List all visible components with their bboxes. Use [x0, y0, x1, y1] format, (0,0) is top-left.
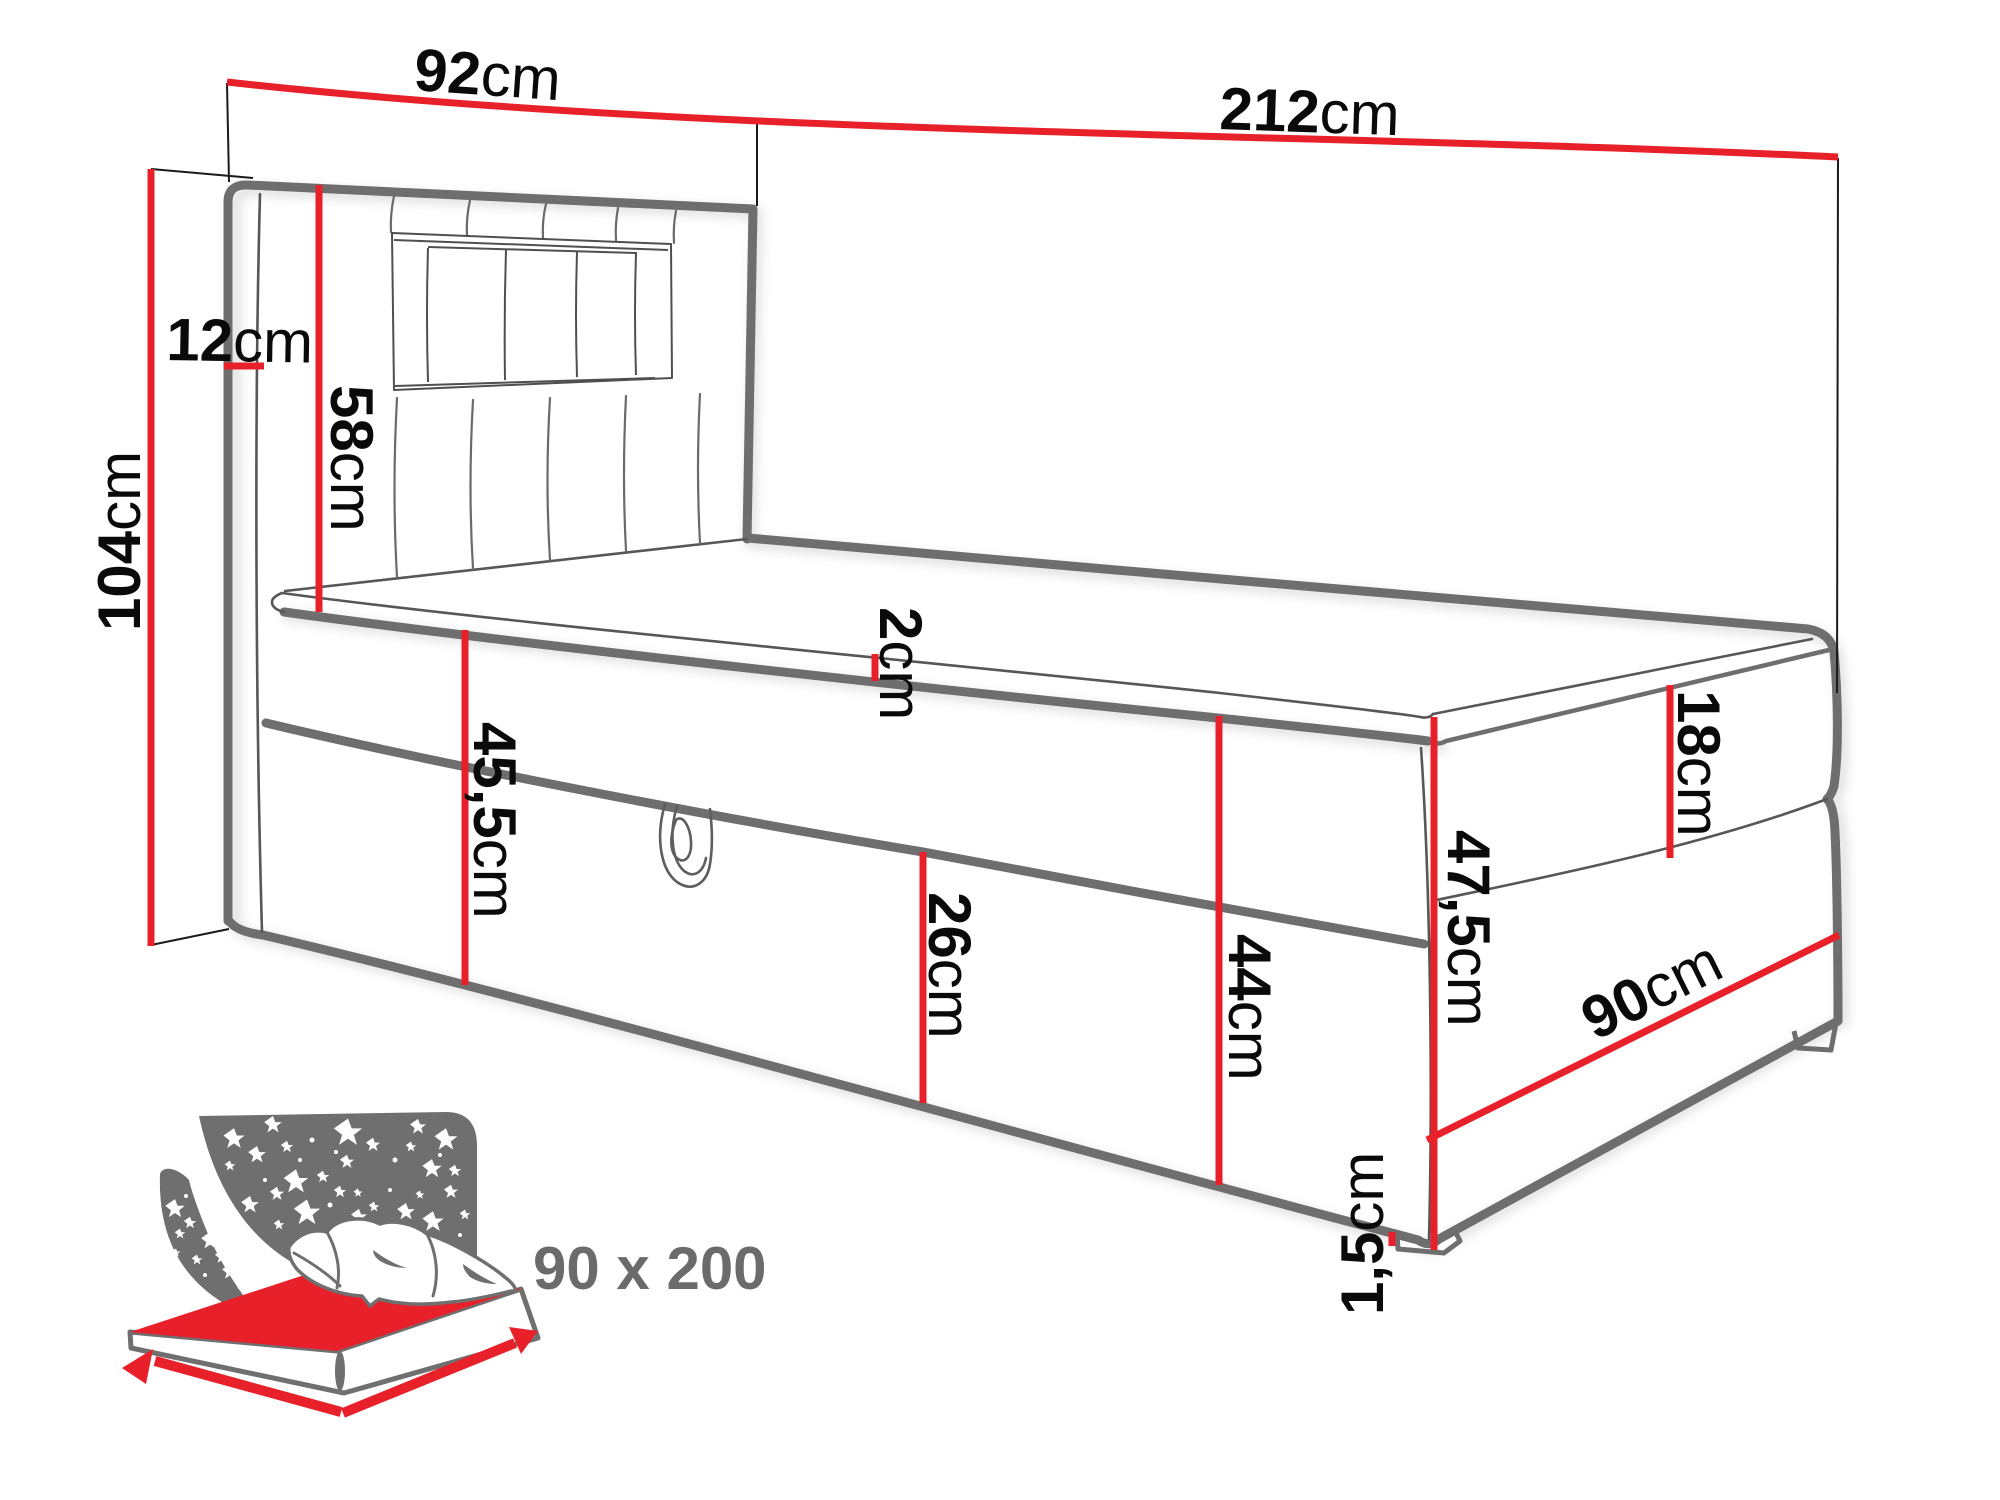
svg-text:45,5cm: 45,5cm: [461, 722, 528, 919]
svg-text:2cm: 2cm: [867, 607, 934, 720]
svg-text:18cm: 18cm: [1665, 690, 1732, 837]
svg-text:58cm: 58cm: [318, 385, 385, 532]
svg-text:104cm: 104cm: [86, 451, 153, 631]
svg-text:1,5cm: 1,5cm: [1329, 1152, 1396, 1315]
svg-text:92cm: 92cm: [412, 36, 563, 113]
svg-text:26cm: 26cm: [916, 892, 983, 1039]
svg-text:47,5cm: 47,5cm: [1435, 830, 1502, 1027]
svg-text:212cm: 212cm: [1219, 75, 1401, 148]
svg-text:12cm: 12cm: [166, 306, 314, 376]
svg-text:90 x 200: 90 x 200: [533, 1235, 767, 1302]
svg-text:44cm: 44cm: [1216, 934, 1283, 1081]
